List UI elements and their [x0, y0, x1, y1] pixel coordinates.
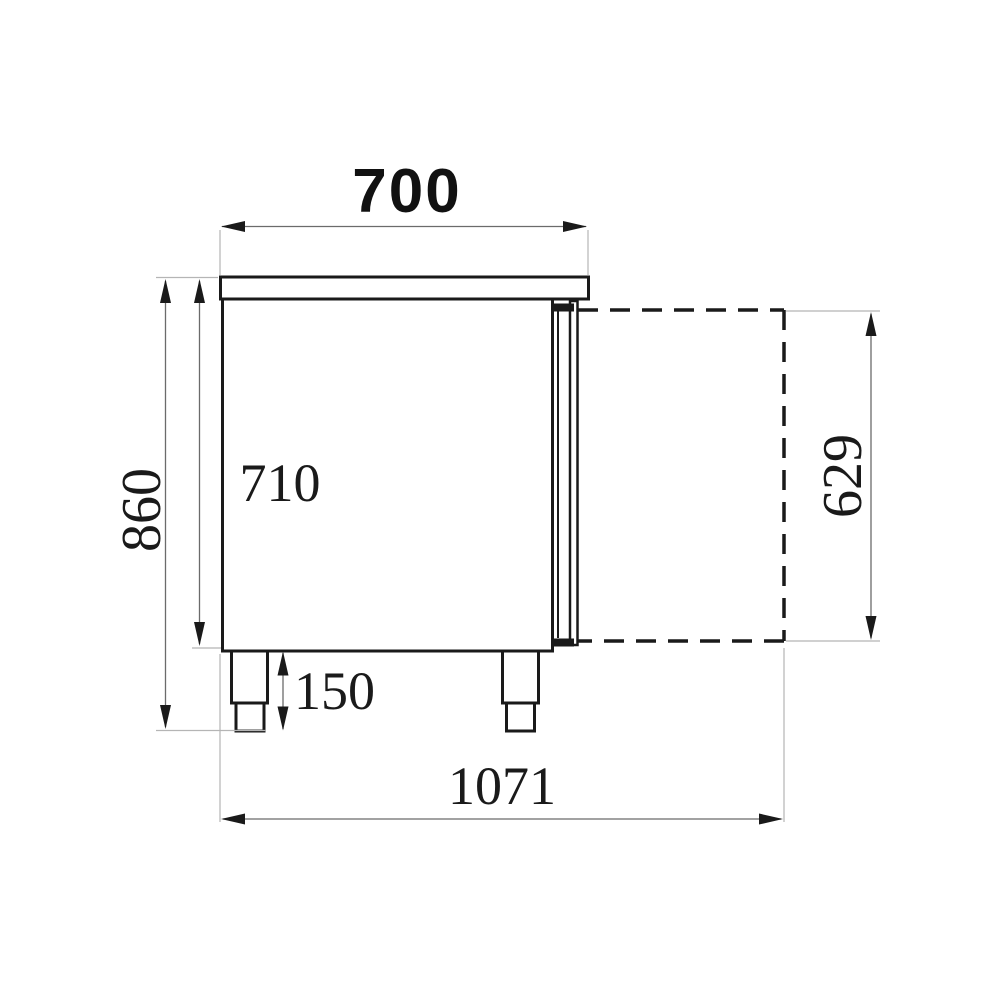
hinge-bottom: [551, 639, 574, 647]
arrowhead-left: [221, 814, 245, 825]
arrowhead-down: [160, 705, 171, 729]
worktop: [221, 277, 589, 299]
dimension-leg-height: 150: [278, 652, 376, 731]
drawing-canvas: 700 860 710 150: [0, 0, 1000, 1000]
arrowhead-left: [221, 221, 245, 232]
door-swing-dashed-outline: [578, 310, 784, 641]
open-door-panel: [570, 301, 578, 645]
arrowhead-down: [866, 616, 877, 640]
arrowhead-right: [563, 221, 587, 232]
arrowhead-up: [866, 312, 877, 336]
hinge-top: [551, 304, 574, 312]
rear-leg-foot: [507, 703, 535, 731]
arrowhead-down: [278, 707, 289, 731]
arrowhead-up: [194, 279, 205, 303]
dimension-label-1071: 1071: [448, 756, 556, 816]
dimension-label-710: 710: [240, 453, 321, 513]
arrowhead-down: [194, 622, 205, 646]
rear-leg-upper: [503, 651, 539, 703]
dimension-top-depth: 700: [220, 157, 588, 275]
front-leg-upper: [232, 651, 268, 703]
dimension-door-height: 629: [786, 311, 880, 641]
dimension-label-700: 700: [352, 157, 461, 226]
arrowhead-right: [759, 814, 783, 825]
front-leg-foot: [236, 703, 264, 731]
dimension-label-150: 150: [294, 661, 375, 721]
arrowhead-up: [278, 652, 289, 676]
arrowhead-up: [160, 279, 171, 303]
dimension-label-629: 629: [812, 434, 874, 518]
technical-drawing: 700 860 710 150: [0, 0, 1000, 1000]
dimension-label-860: 860: [111, 468, 173, 552]
